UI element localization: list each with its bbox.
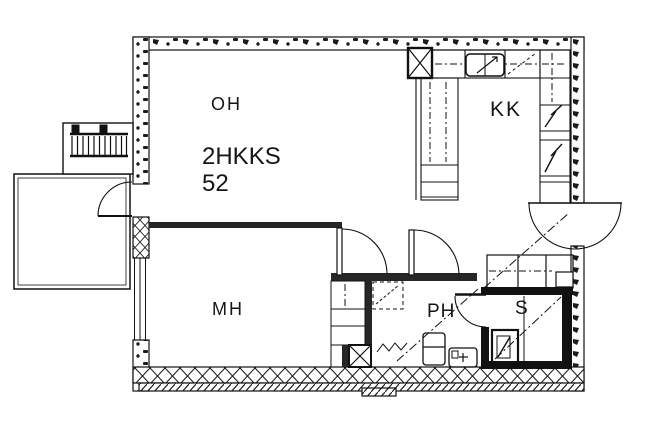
shower-area	[373, 282, 403, 309]
kitchen-sink	[466, 54, 504, 76]
wall-bottom-tab	[362, 388, 396, 396]
ventilation-duct-bathroom	[342, 345, 371, 367]
wall-top	[133, 37, 584, 50]
railing-post	[72, 125, 79, 133]
wall-hall-south	[331, 273, 477, 281]
wall-left-mid	[133, 217, 149, 258]
washing-machine	[423, 333, 445, 365]
fridge-mark	[545, 105, 562, 127]
interior-walls	[149, 222, 477, 367]
floor-plan-scan: OH KK MH PH S 2HKKS 52	[0, 0, 650, 426]
door-arc-2	[414, 230, 459, 275]
apartment-area-label: 52	[202, 170, 229, 197]
door-leaf-2	[409, 230, 414, 275]
bedroom-closets	[331, 281, 365, 345]
balcony-door	[98, 182, 132, 216]
wall-bottom	[133, 367, 584, 383]
hall-wardrobes	[487, 255, 573, 288]
refrigerator-cabinets	[540, 50, 570, 203]
balcony	[14, 174, 130, 289]
room-label-bedroom: MH	[212, 299, 244, 319]
railing-post	[100, 125, 107, 133]
entry-door	[528, 203, 622, 249]
sauna-door	[455, 295, 486, 328]
room-doors	[337, 228, 459, 275]
room-label-sauna: S	[515, 298, 528, 319]
wc-basin	[449, 348, 477, 367]
exterior-walls	[133, 37, 584, 396]
ventilation-duct-kitchen	[408, 48, 432, 78]
wall-left-upper	[133, 37, 149, 184]
section-line-sauna	[495, 297, 561, 359]
kitchen-counter-left	[416, 78, 458, 200]
floor-drain-mark	[377, 343, 407, 352]
door-arc-1	[342, 229, 387, 274]
wall-bedroom-north	[149, 222, 342, 228]
wall-closet-back	[365, 281, 372, 345]
apartment-type-label: 2HKKS	[202, 143, 281, 170]
room-label-living-room: OH	[211, 94, 242, 114]
door-leaf-1	[337, 228, 342, 275]
entrance-stairs	[63, 123, 133, 174]
freezer-mark	[545, 144, 562, 172]
floor-plan-drawing: OH KK MH PH S 2HKKS 52	[0, 0, 650, 426]
section-line-bathroom	[397, 289, 478, 361]
wall-right-upper	[571, 37, 584, 203]
room-label-bathroom: PH	[427, 301, 455, 322]
room-label-kitchenette: KK	[490, 98, 522, 121]
